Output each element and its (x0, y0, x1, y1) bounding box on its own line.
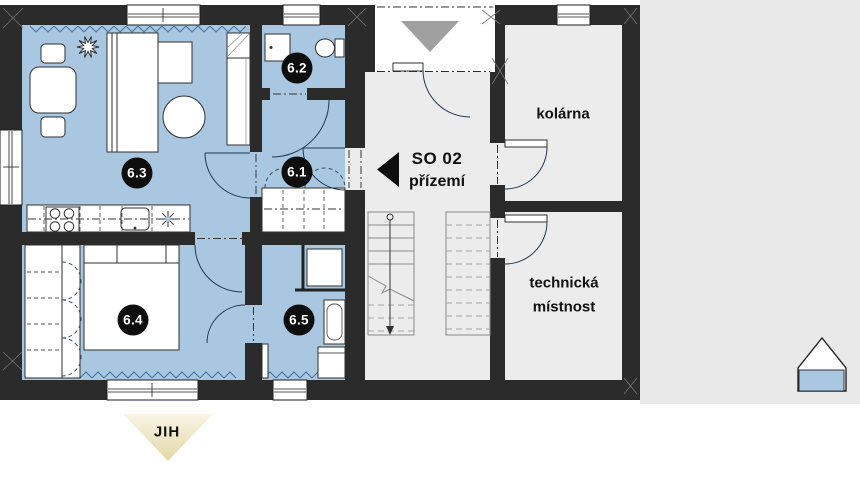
bike-room-label: kolárna (536, 106, 589, 123)
block-label: SO 02 (412, 149, 463, 169)
room-badge-6-1: 6.1 (282, 157, 313, 188)
technical-room-label-1: technická (529, 275, 598, 292)
room-badge-6-4: 6.4 (118, 305, 149, 336)
window-bottom-bedroom (107, 380, 198, 400)
cabinet-icon (227, 33, 250, 145)
toilet-icon (316, 39, 345, 57)
door-leaf (505, 140, 547, 147)
window-left-living (0, 130, 22, 205)
room-badge-6-3: 6.3 (122, 158, 153, 189)
kitchen-counter (27, 205, 190, 232)
window-top-wc (283, 5, 320, 25)
sofa-icon (107, 33, 158, 152)
washer-icon (318, 347, 345, 378)
window-top-bike-room (557, 5, 590, 25)
dining-table-icon (30, 67, 76, 113)
wardrobe-icon (25, 245, 81, 378)
window-bottom-bath (273, 380, 307, 400)
floor-plan-drawing (0, 0, 860, 480)
room-badge-6-5: 6.5 (284, 305, 315, 336)
technical-room-floor (505, 212, 622, 380)
chair-icon (41, 44, 65, 63)
bathtub-icon (324, 300, 345, 344)
door-leaf (505, 215, 547, 222)
door-leaf (262, 344, 268, 378)
shower-icon (307, 249, 342, 286)
chair-icon (41, 117, 65, 137)
compass-south-label: JIH (154, 424, 180, 441)
boiler-star-icon (160, 211, 176, 227)
door-leaf (393, 63, 423, 71)
stair-hall-floor (365, 72, 490, 380)
floor-plan-page: 6.1 6.2 6.3 6.4 6.5 SO 02 přízemí kolárn… (0, 0, 860, 480)
floor-label: přízemí (409, 173, 465, 191)
coffee-table-icon (163, 96, 205, 138)
window-top-living (127, 5, 200, 25)
room-badge-6-2: 6.2 (282, 53, 313, 84)
sofa-chaise-icon (158, 42, 192, 83)
technical-room-label-2: místnost (533, 299, 596, 316)
